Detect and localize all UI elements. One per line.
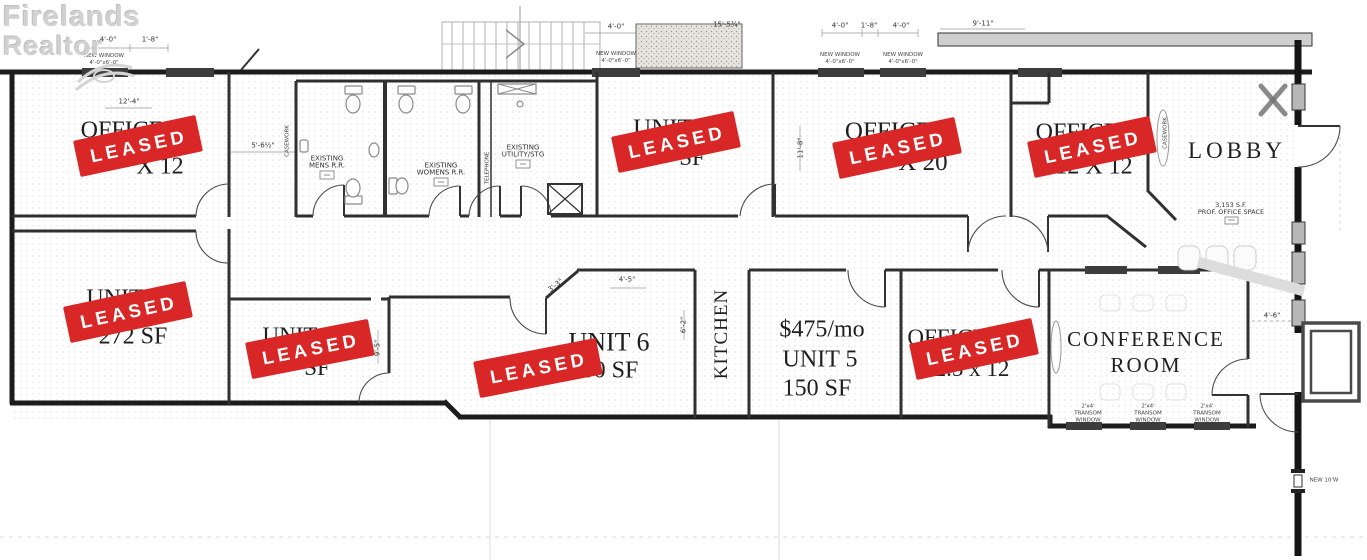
new-window-note: NEW WINDOW 4'-0"x6'-0"	[883, 52, 923, 66]
dim-1-8-r: 1'-8"	[861, 22, 878, 29]
office-space-desc: PROF. OFFICE SPACE	[1198, 209, 1264, 216]
exterior-stairs-icon	[442, 6, 600, 70]
transom-window-label: 2'x4' TRANSOM WINDOW	[1074, 404, 1101, 425]
utility-line2: UTILITY/STG	[502, 152, 544, 159]
dim-4-0-r2: 4'-0"	[893, 22, 910, 29]
transom-size: 2'x4'	[1134, 404, 1161, 411]
conference-line1: CONFERENCE	[1067, 328, 1225, 350]
new-window-line2: 4'-0"x6'-0"	[596, 58, 636, 65]
transom-line2: TRANSOM	[1193, 411, 1220, 418]
mens-rr-line2: MENS R.R.	[309, 163, 345, 170]
womens-rr-label: EXISTING WOMENS R.R.	[417, 163, 465, 178]
lobby-label: LOBBY	[1188, 139, 1286, 163]
unit5-price: $475/mo	[779, 317, 864, 342]
exterior-walkway-icon	[938, 33, 1312, 46]
dim-4-6: 4'-6"	[1264, 312, 1281, 319]
dim-6-2: 6'-2"	[680, 317, 687, 334]
watermark-line2: Realtor	[3, 32, 141, 60]
dimension-lines	[88, 29, 1296, 364]
utility-label: EXISTING UTILITY/STG	[502, 145, 544, 160]
new-window-line2: 4'-0"x6'-0"	[883, 59, 923, 66]
new-window-line2: 4'-0"x6'-0"	[84, 60, 124, 67]
conference-line2: ROOM	[1110, 354, 1181, 376]
transom-line2: TRANSOM	[1134, 411, 1161, 418]
transom-window-label: 2'x4' TRANSOM WINDOW	[1193, 404, 1220, 425]
watermark: Firelands Realtor	[3, 2, 141, 61]
kitchen-label: KITCHEN	[712, 289, 732, 379]
new-window-line2: 4'-0"x6'-0"	[820, 59, 860, 66]
dim-5-6: 5'-6½"	[251, 142, 274, 149]
new-door-label: NEW 10'W	[1310, 478, 1339, 485]
transom-line3: WINDOW	[1193, 417, 1220, 424]
transom-line3: WINDOW	[1134, 417, 1161, 424]
dim-9-11: 9'-11"	[972, 20, 993, 27]
new-window-line1: NEW WINDOW	[820, 52, 860, 59]
telephone-label: TELEPHONE	[485, 152, 492, 185]
dim-9-5: 9'-5"	[374, 340, 381, 357]
floorplan-drawing	[0, 0, 1367, 560]
new-window-note: NEW WINDOW 4'-0"x6'-0"	[820, 52, 860, 66]
womens-rr-line2: WOMENS R.R.	[417, 170, 465, 177]
new-window-line1: NEW WINDOW	[883, 52, 923, 59]
casework-label: CASEWORK	[1163, 117, 1170, 149]
floorplan-page: Firelands Realtor 4'-0" 1'-8" NEW WINDOW…	[0, 0, 1367, 560]
unit5-name: UNIT 5	[783, 347, 858, 372]
mens-rr-label: EXISTING MENS R.R.	[309, 156, 345, 171]
dim-11-8: 11'-8"	[797, 137, 804, 158]
transom-window-label: 2'x4' TRANSOM WINDOW	[1134, 404, 1161, 425]
new-door-symbol	[1291, 469, 1305, 493]
transom-size: 2'x4'	[1193, 404, 1220, 411]
dim-4-0-deck: 4'-0"	[608, 23, 625, 30]
transom-line2: TRANSOM	[1074, 411, 1101, 418]
exterior-deck-icon	[636, 24, 742, 68]
casework-icon	[1051, 321, 1061, 373]
dim-4-0-r1: 4'-0"	[832, 22, 849, 29]
transom-size: 2'x4'	[1074, 404, 1101, 411]
dim-4-5: 4'-5"	[619, 276, 636, 283]
watermark-line1: Firelands	[3, 2, 141, 32]
new-window-note: NEW WINDOW 4'-0"x6'-0"	[596, 51, 636, 65]
entry-vestibule	[1303, 323, 1359, 401]
unit5-size: 150 SF	[783, 376, 852, 401]
transom-line3: WINDOW	[1074, 417, 1101, 424]
new-window-line1: NEW WINDOW	[596, 51, 636, 58]
office-space-note: 3,153 S.F. PROF. OFFICE SPACE	[1198, 202, 1264, 216]
dim-1-8: 1'-8"	[142, 36, 159, 43]
dim-12-4: 12'-4"	[118, 98, 139, 105]
dim-15-5: 15'-5¾"	[713, 21, 741, 28]
casework-label: CASEWORK	[285, 125, 292, 157]
